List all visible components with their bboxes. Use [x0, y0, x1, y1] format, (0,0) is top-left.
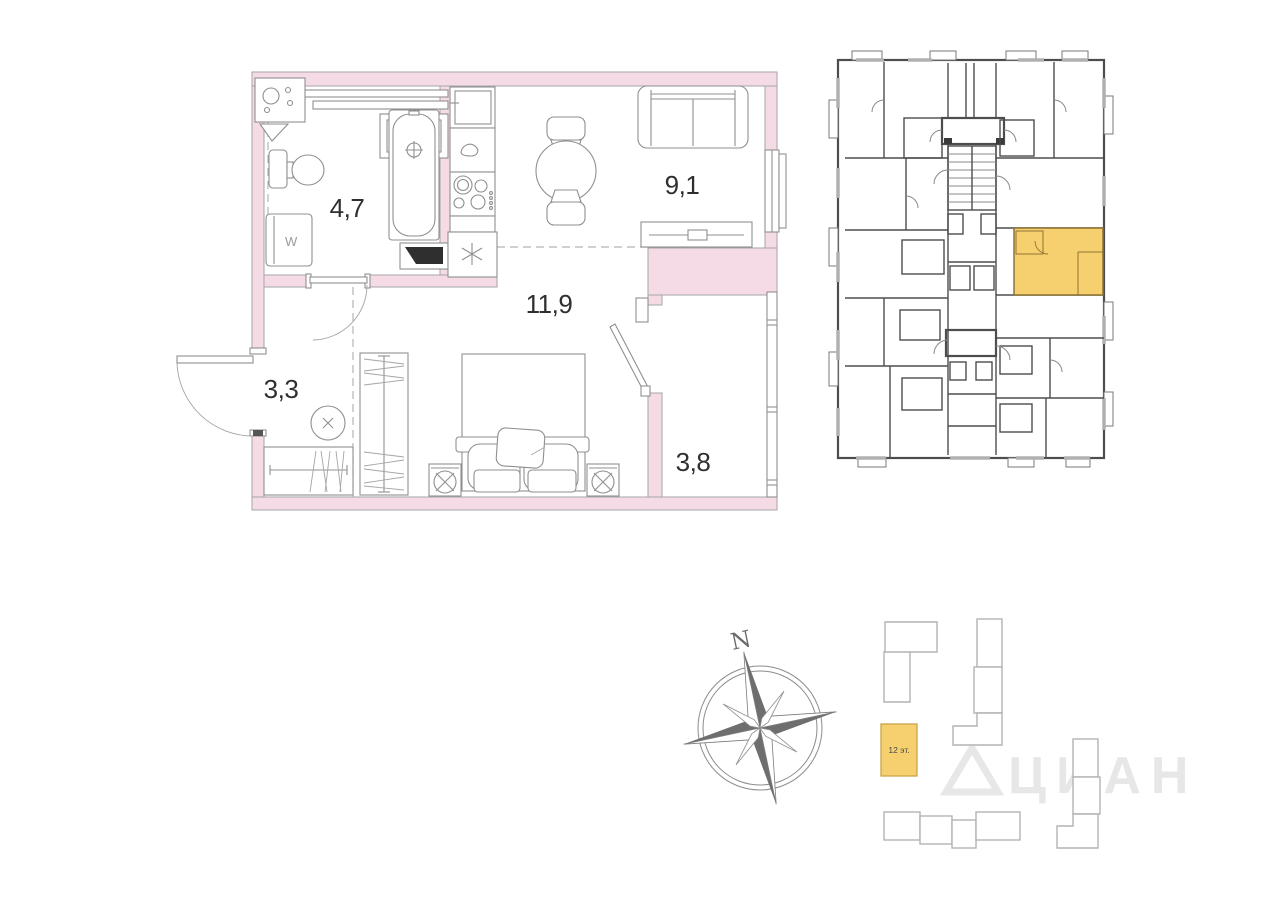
watermark-text: ЦИАН [1008, 747, 1198, 805]
door-jamb-mark [253, 430, 263, 436]
bathtub [389, 110, 439, 240]
entrance-door [177, 356, 253, 436]
stove [450, 172, 495, 216]
room-area-living-room: 11,9 [526, 289, 573, 319]
room-area-balcony: 3,8 [676, 447, 711, 477]
bathroom-cabinet [400, 243, 448, 269]
balcony-door [610, 298, 650, 396]
site-building-3 [884, 812, 1020, 848]
bathroom-door [310, 277, 367, 340]
room-area-kitchen-living: 9,1 [665, 170, 700, 200]
hallway-wardrobe [264, 447, 353, 495]
compass-north-label: N [728, 626, 753, 656]
highlighted-unit [1014, 228, 1103, 295]
washing-machine: W [266, 214, 312, 266]
washing-machine-glyph: W [285, 234, 298, 249]
pouf [311, 406, 345, 440]
kitchen-counter [450, 128, 495, 172]
site-building-floors-label: 12 эт. [888, 745, 909, 755]
site-building-2 [953, 619, 1002, 745]
compass-rose: N [684, 626, 837, 804]
watermark-logo-icon [946, 748, 998, 792]
room-area-hallway: 3,3 [264, 374, 299, 404]
dining-table [536, 117, 596, 225]
tv-stand [641, 222, 752, 247]
nightstand-right [587, 464, 619, 496]
watermark: ЦИАН [946, 747, 1198, 805]
toilet [269, 150, 324, 188]
kitchen-sink-cabinet [450, 87, 495, 128]
apartment-floorplan: W [177, 72, 786, 510]
floorplan-page: ЦИАН [0, 0, 1280, 905]
wardrobe-tall [360, 353, 408, 495]
nightstand-left [429, 464, 461, 496]
site-building-1 [884, 622, 937, 702]
window-kitchen-living [765, 150, 786, 232]
floorplan-drawing: ЦИАН [0, 0, 1280, 905]
balcony-glazing [767, 292, 777, 497]
sofa [638, 86, 748, 148]
fridge [448, 216, 497, 277]
site-highlighted-building: 12 эт. [881, 724, 917, 776]
bed [456, 354, 589, 492]
site-plan: 12 эт. [881, 619, 1100, 848]
room-area-bathroom: 4,7 [330, 193, 365, 223]
building-floorplan [829, 51, 1113, 467]
